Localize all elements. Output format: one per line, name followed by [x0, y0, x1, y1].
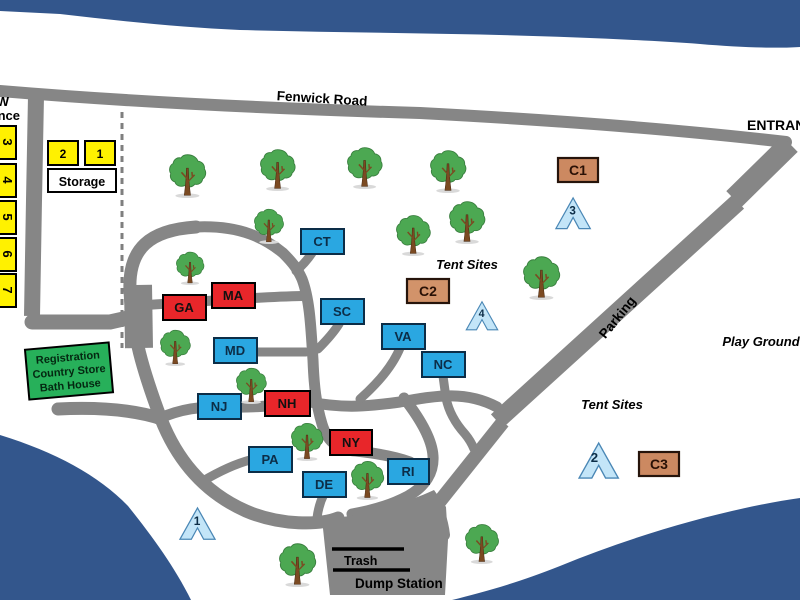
- svg-text:1: 1: [97, 147, 104, 161]
- svg-text:Play Ground: Play Ground: [722, 334, 800, 349]
- svg-text:1: 1: [194, 514, 201, 528]
- svg-text:Entrance: Entrance: [0, 108, 20, 123]
- svg-text:2: 2: [60, 147, 67, 161]
- svg-text:MA: MA: [223, 288, 244, 303]
- svg-text:MD: MD: [225, 343, 245, 358]
- svg-text:2: 2: [591, 450, 598, 465]
- svg-text:NW: NW: [0, 94, 10, 109]
- svg-text:Tent Sites: Tent Sites: [581, 397, 643, 412]
- svg-text:NJ: NJ: [211, 399, 228, 414]
- svg-text:NC: NC: [434, 357, 453, 372]
- svg-text:Tent Sites: Tent Sites: [436, 257, 498, 272]
- svg-text:3: 3: [0, 138, 15, 145]
- svg-text:VA: VA: [394, 329, 412, 344]
- svg-text:C2: C2: [419, 283, 437, 299]
- svg-text:4: 4: [0, 176, 15, 184]
- svg-text:DE: DE: [315, 477, 333, 492]
- svg-text:Trash: Trash: [344, 554, 377, 568]
- svg-text:NY: NY: [342, 435, 360, 450]
- svg-text:6: 6: [0, 250, 15, 257]
- svg-text:5: 5: [0, 213, 15, 220]
- svg-text:3: 3: [569, 205, 576, 218]
- svg-text:NH: NH: [278, 396, 297, 411]
- svg-text:SC: SC: [333, 304, 352, 319]
- svg-text:C3: C3: [650, 456, 668, 472]
- svg-text:GA: GA: [174, 300, 194, 315]
- svg-text:Dump Station: Dump Station: [355, 576, 443, 591]
- svg-text:RI: RI: [402, 464, 415, 479]
- svg-text:ENTRANCE: ENTRANCE: [747, 117, 800, 133]
- svg-text:CT: CT: [313, 234, 330, 249]
- svg-text:Storage: Storage: [59, 175, 106, 189]
- svg-text:4: 4: [479, 308, 485, 320]
- svg-text:PA: PA: [261, 452, 279, 467]
- svg-text:7: 7: [0, 286, 15, 293]
- svg-text:C1: C1: [569, 162, 587, 178]
